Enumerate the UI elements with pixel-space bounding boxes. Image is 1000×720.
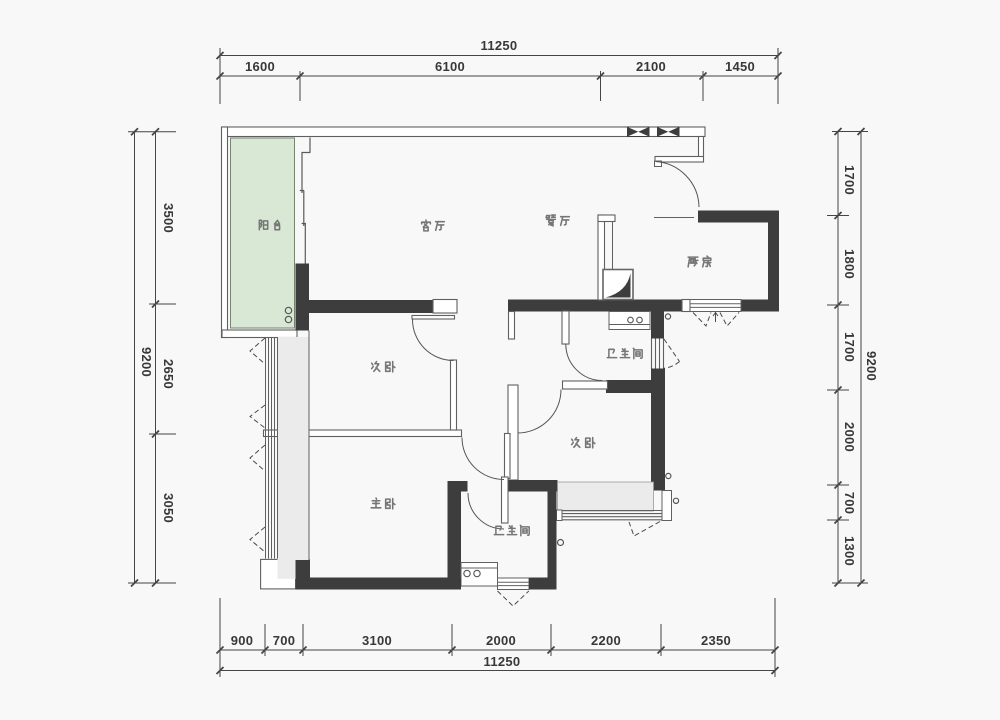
svg-text:9200: 9200 [864, 351, 879, 381]
svg-text:9200: 9200 [139, 347, 154, 377]
svg-text:3050: 3050 [161, 493, 176, 523]
svg-text:2650: 2650 [161, 359, 176, 389]
svg-text:1600: 1600 [245, 59, 275, 74]
svg-text:1700: 1700 [842, 165, 857, 195]
svg-text:2100: 2100 [636, 59, 666, 74]
svg-text:2350: 2350 [701, 633, 731, 648]
svg-text:6100: 6100 [435, 59, 465, 74]
svg-text:1450: 1450 [725, 59, 755, 74]
svg-text:11250: 11250 [484, 654, 521, 669]
svg-text:2000: 2000 [842, 422, 857, 452]
svg-text:1300: 1300 [842, 536, 857, 566]
svg-text:700: 700 [273, 633, 296, 648]
svg-text:3500: 3500 [161, 203, 176, 233]
svg-text:3100: 3100 [362, 633, 392, 648]
svg-text:11250: 11250 [481, 38, 518, 53]
svg-text:1800: 1800 [842, 249, 857, 279]
svg-text:2000: 2000 [486, 633, 516, 648]
svg-text:900: 900 [231, 633, 254, 648]
svg-text:700: 700 [842, 492, 857, 515]
svg-text:1700: 1700 [842, 332, 857, 362]
svg-text:2200: 2200 [591, 633, 621, 648]
